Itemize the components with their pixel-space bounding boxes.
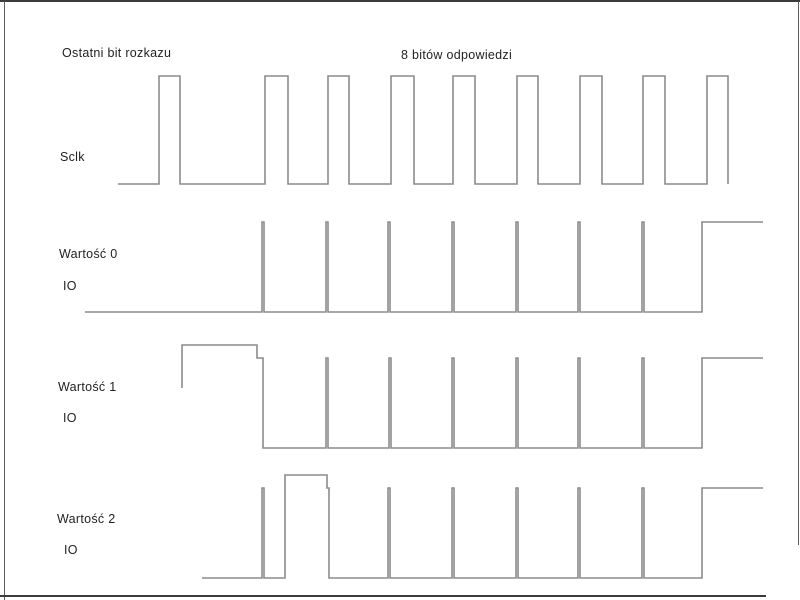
annotation-last-command-bit: Ostatni bit rozkazu <box>62 46 171 60</box>
signal-label-value0-io: IO <box>63 279 77 293</box>
signal-label-value2: Wartość 2 <box>57 512 116 526</box>
signal-label-value2-io: IO <box>64 543 78 557</box>
signal-label-value1: Wartość 1 <box>58 380 117 394</box>
value1-io-waveform <box>182 345 763 448</box>
signal-label-value0: Wartość 0 <box>59 247 118 261</box>
annotation-response-bits: 8 bitów odpowiedzi <box>401 48 512 62</box>
signal-label-value1-io: IO <box>63 411 77 425</box>
signal-label-sclk: Sclk <box>60 150 85 164</box>
sclk-waveform <box>118 76 728 184</box>
waveform-canvas <box>0 0 800 600</box>
timing-diagram: Ostatni bit rozkazu 8 bitów odpowiedzi S… <box>0 0 800 600</box>
value0-io-waveform <box>85 222 763 312</box>
value2-io-waveform <box>202 475 763 578</box>
